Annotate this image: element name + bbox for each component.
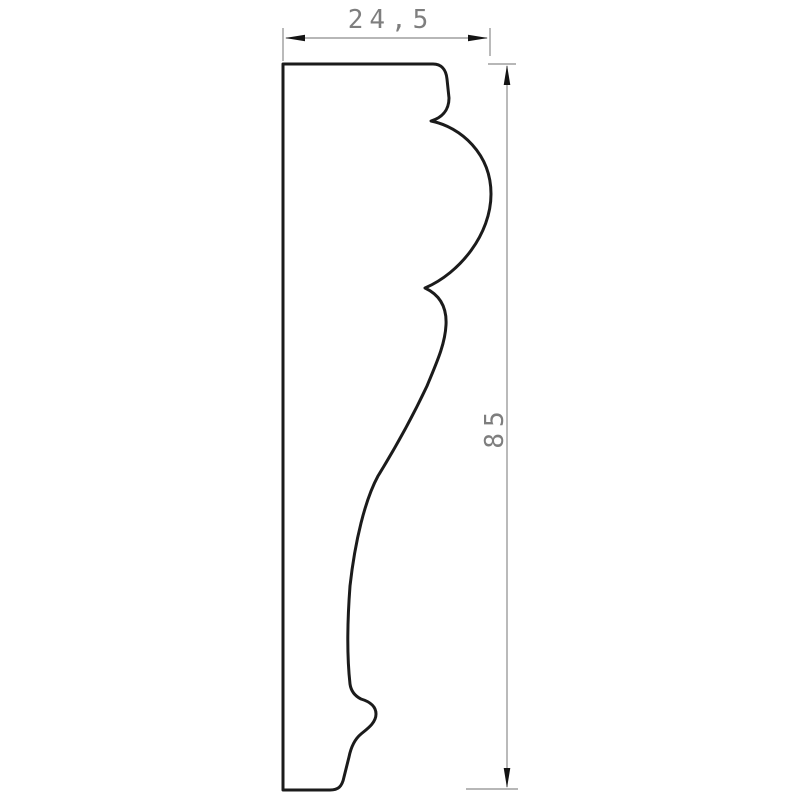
arrow-up-icon	[504, 65, 511, 85]
arrow-down-icon	[504, 768, 511, 788]
height-dimension-label: 85	[480, 405, 510, 448]
technical-drawing: 24,5 85	[0, 0, 800, 800]
arrow-left-icon	[285, 35, 305, 42]
moulding-profile-outline	[283, 64, 491, 790]
drawing-canvas: 24,5 85	[0, 0, 800, 800]
width-dimension-label: 24,5	[348, 5, 435, 35]
arrow-right-icon	[468, 35, 488, 42]
